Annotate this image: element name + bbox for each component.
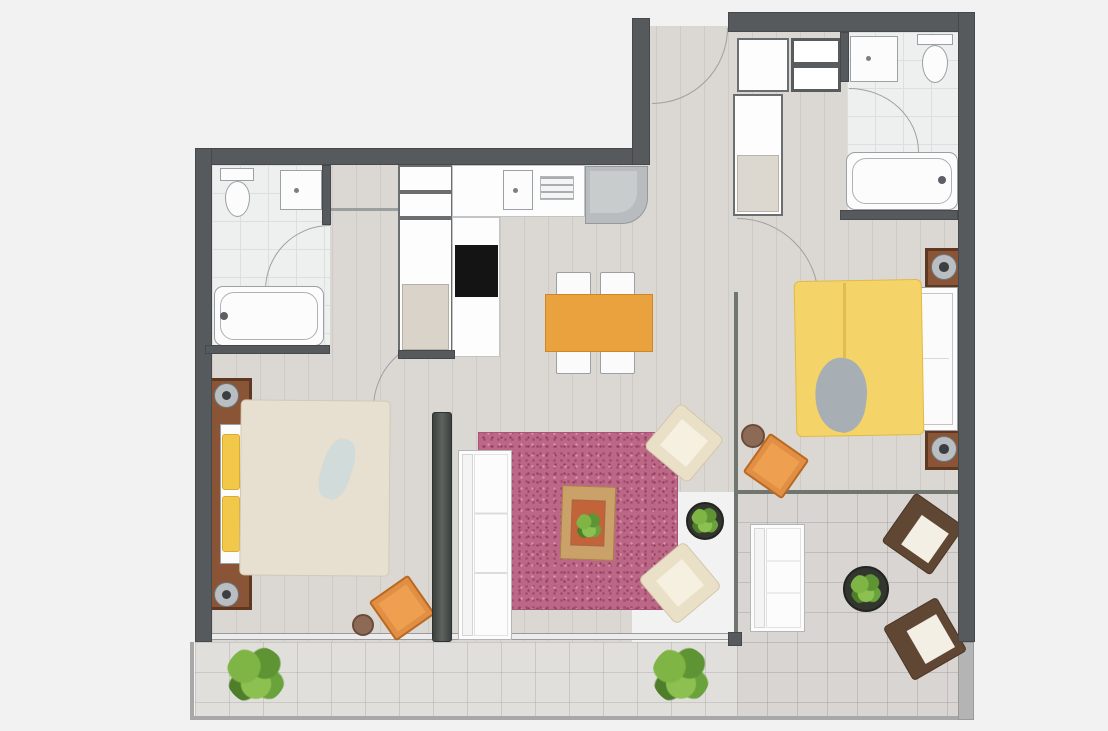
bed1-lamp-1 <box>214 383 239 408</box>
bathtub2-faucet <box>938 176 946 184</box>
entry-closet-cabinet <box>737 38 789 92</box>
wall-entry-left <box>632 18 650 165</box>
dining-table <box>545 294 653 352</box>
dining-chair-1 <box>556 272 591 296</box>
balcony-plant-2 <box>652 646 710 704</box>
coffee-table-plant <box>576 512 602 540</box>
living-plant <box>691 507 719 535</box>
bathroom2-sink <box>850 36 898 82</box>
bed1-lamp-2 <box>214 582 239 607</box>
balcony-railing-bottom <box>190 716 962 720</box>
wall-left <box>195 148 212 642</box>
bathroom1-sink <box>280 170 322 210</box>
terrace-plant <box>850 573 882 605</box>
wall-right <box>958 12 975 642</box>
hall-closet-shelf-a <box>398 165 453 192</box>
wall-top-left <box>195 148 650 165</box>
partition-post <box>728 632 742 646</box>
dining-chair-4 <box>600 350 635 374</box>
partition-living-terrace <box>734 292 738 640</box>
nightstand-lamp-2 <box>931 436 957 462</box>
toilet1-tank <box>220 168 254 181</box>
wall-bath1-bottom <box>205 345 330 354</box>
hall-doorway-lintel <box>330 208 398 211</box>
bed1-duvet <box>239 399 391 576</box>
wall-top-right <box>728 12 975 32</box>
wall-bath1-right <box>322 165 331 225</box>
dining-chair-2 <box>600 272 635 296</box>
wall-bath2-left <box>840 32 849 82</box>
hall-closet-shelf-b <box>398 192 453 218</box>
kitchen-sink <box>503 170 533 210</box>
hall-wardrobe-interior <box>402 284 449 350</box>
bed1-pillow-1 <box>222 434 240 490</box>
entry-closet-shelves <box>791 38 841 92</box>
wall-hall-stub <box>398 350 455 359</box>
kitchen-stove <box>585 166 648 224</box>
balcony-railing-left <box>190 642 194 720</box>
nightstand-lamp-1 <box>931 254 957 280</box>
bathtub1-faucet <box>220 312 228 320</box>
sofa <box>458 450 512 640</box>
bed1-pillow-2 <box>222 496 240 552</box>
floor-plan <box>0 0 1108 731</box>
entry-wardrobe-interior <box>737 155 779 212</box>
wall-bath2-bottom <box>840 210 958 220</box>
pouf-1 <box>352 614 374 636</box>
toilet2-tank <box>917 34 953 45</box>
terrace-loveseat <box>750 524 805 632</box>
dining-chair-3 <box>556 350 591 374</box>
kitchen-oven <box>455 245 498 297</box>
bathtub-1 <box>214 286 324 346</box>
balcony-plant-1 <box>226 646 286 704</box>
kitchen-vent-grill <box>540 176 574 200</box>
tv-partition-wall <box>432 412 452 642</box>
